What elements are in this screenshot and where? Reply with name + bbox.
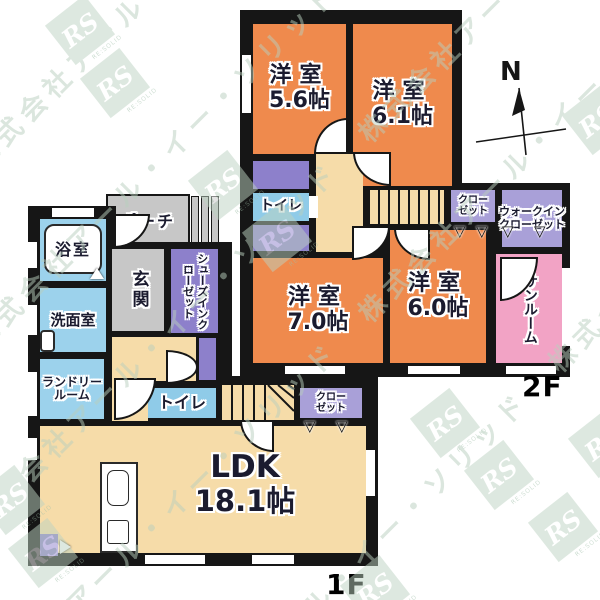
window	[52, 208, 94, 217]
room-label: 玄関	[128, 270, 147, 310]
floorplan-canvas: 洋室 5.6帖 洋室 6.1帖 トイレ 洋室 7.0帖 洋室 6.0帖 クロー …	[0, 0, 600, 600]
folding-door-icon: ▽	[454, 224, 466, 239]
compass: N	[462, 42, 574, 160]
closet-2f-upper	[253, 161, 309, 189]
closet-2f-lower	[253, 225, 309, 251]
room-label: シューズインクローゼット	[180, 249, 209, 333]
porch-step	[201, 196, 209, 246]
room-closet-2f: クロー ゼット	[451, 190, 495, 222]
room-label: 洗面室	[50, 312, 95, 329]
closet-ldk-small	[40, 534, 58, 556]
room-label: 浴室	[55, 241, 91, 259]
room-label: 洋室 6.0帖	[408, 272, 469, 321]
door-gap	[309, 196, 318, 218]
room-label: 洋室 7.0帖	[288, 286, 349, 335]
room-label: 洋室 6.1帖	[372, 80, 433, 129]
compass-arrow-icon	[512, 88, 525, 116]
compass-north-label: N	[500, 57, 522, 87]
stairs-2f	[370, 190, 444, 224]
rs-logo: RSRE:SOLID	[410, 388, 480, 458]
room-label-ldk: LDK 18.1帖	[150, 450, 340, 517]
room-bedroom-7-0: 洋室 7.0帖	[253, 258, 383, 363]
rs-logo: RSRE:SOLID	[80, 48, 150, 118]
room-toilet-2f: トイレ	[253, 193, 309, 221]
floor2-label: 2F	[522, 370, 563, 403]
room-entrance: 玄関	[112, 249, 164, 331]
washbasin-icon	[40, 330, 55, 352]
porch-step	[211, 196, 219, 246]
room-closet-1f: クロー ゼット	[300, 388, 362, 418]
rs-logo: RSRE:SOLID	[464, 440, 534, 510]
rs-logo: RSRE:SOLID	[568, 408, 600, 478]
folding-door-icon: ▽	[476, 224, 488, 239]
window	[252, 555, 294, 564]
room-label: クロー ゼット	[458, 195, 488, 217]
window	[28, 372, 37, 416]
stairs-1f	[222, 385, 294, 420]
folding-door-icon: ▽	[502, 224, 514, 239]
kitchen-sink-icon	[107, 470, 129, 506]
closet-1f-small	[199, 338, 216, 380]
window	[145, 555, 205, 564]
floor1-label: 1F	[326, 568, 367, 600]
window	[366, 450, 375, 496]
window	[28, 242, 37, 268]
room-label: クロー ゼット	[316, 392, 346, 414]
window	[28, 305, 37, 335]
room-label: 洋室 5.6帖	[269, 64, 330, 113]
room-washroom: 洗面室	[40, 288, 106, 352]
window	[285, 366, 345, 374]
folding-door-icon: ▽	[304, 419, 316, 434]
rs-logo: RSRE:SOLID	[528, 492, 598, 562]
kitchen-stove-icon	[107, 520, 129, 544]
folding-door-icon: ▽	[336, 419, 348, 434]
folding-door-icon: ▽	[534, 224, 546, 239]
room-laundry: ランドリー ルーム	[40, 359, 104, 419]
window	[28, 438, 37, 460]
room-shoes-closet: シューズインクローゼット	[171, 249, 218, 333]
window	[242, 55, 251, 113]
rs-logo: RSRE:SOLID	[45, 0, 115, 65]
window	[562, 268, 570, 346]
room-toilet-1f: トイレ	[148, 388, 216, 418]
door-triangle-icon	[90, 268, 104, 279]
door-triangle-icon	[60, 540, 71, 554]
kitchen-counter-icon	[100, 462, 138, 553]
room-label: トイレ	[260, 199, 302, 215]
window	[408, 366, 460, 374]
porch-step	[191, 196, 199, 246]
room-label: トイレ	[158, 394, 206, 412]
room-label: ランドリー ルーム	[42, 376, 102, 403]
